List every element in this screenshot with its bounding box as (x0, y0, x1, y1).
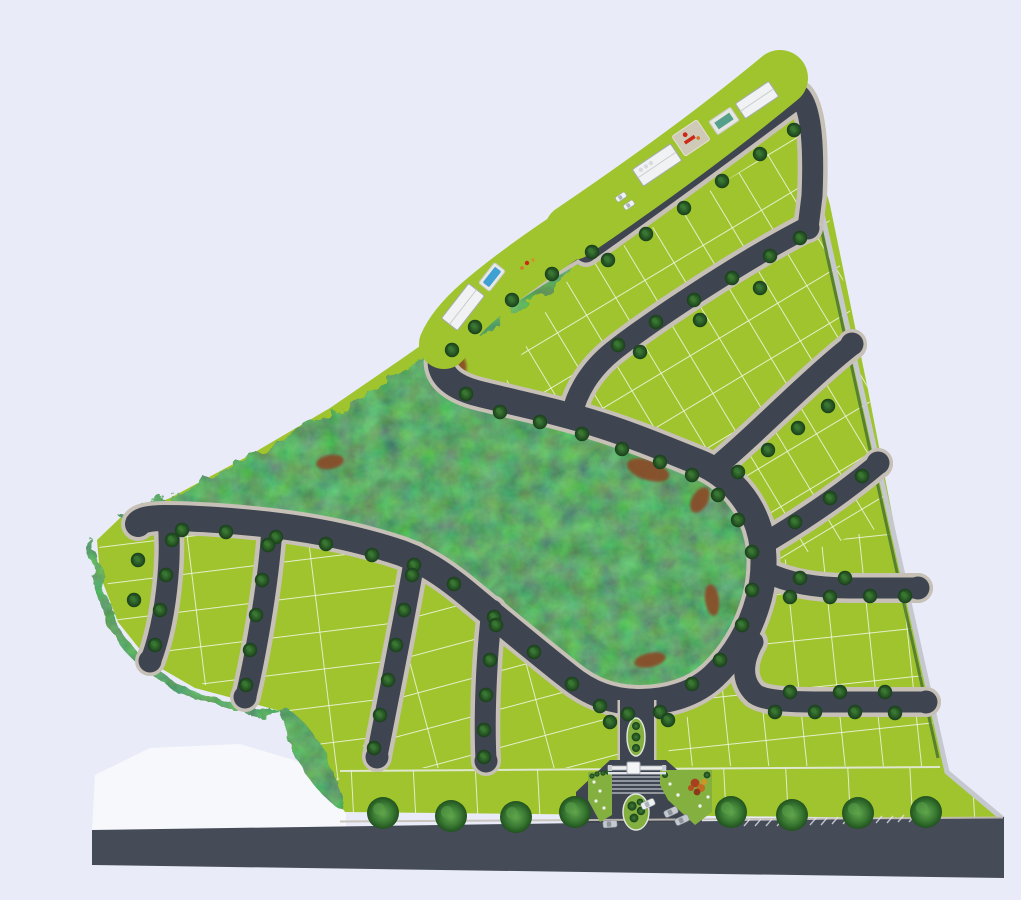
tree-icon (661, 713, 675, 727)
tree-icon (255, 573, 269, 587)
tree-icon (381, 673, 395, 687)
tree-icon (483, 653, 497, 667)
tree-icon (367, 797, 399, 829)
tree-icon (489, 618, 503, 632)
tree-icon (711, 488, 725, 502)
tree-icon (745, 545, 759, 559)
site-plan-render (0, 0, 1021, 900)
tree-icon (477, 723, 491, 737)
tree-icon (842, 797, 874, 829)
tree-icon (243, 643, 257, 657)
tree-icon (776, 799, 808, 831)
tree-icon (685, 677, 699, 691)
tree-icon (793, 231, 807, 245)
tree-icon (821, 399, 835, 413)
tree-icon (493, 405, 507, 419)
tree-icon (685, 468, 699, 482)
tree-icon (693, 313, 707, 327)
tree-icon (505, 293, 519, 307)
tree-icon (791, 421, 805, 435)
tree-icon (365, 548, 379, 562)
tree-icon (863, 589, 877, 603)
tree-icon (753, 281, 767, 295)
tree-icon (848, 705, 862, 719)
tree-icon (373, 708, 387, 722)
tree-icon (639, 227, 653, 241)
tree-icon (445, 343, 459, 357)
tree-icon (878, 685, 892, 699)
tree-icon (653, 455, 667, 469)
tree-icon (261, 538, 275, 552)
tree-icon (633, 345, 647, 359)
tree-icon (611, 338, 625, 352)
tree-icon (585, 245, 599, 259)
tree-icon (367, 741, 381, 755)
tree-icon (761, 443, 775, 457)
tree-icon (500, 801, 532, 833)
tree-icon (601, 253, 615, 267)
tree-icon (239, 678, 253, 692)
tree-icon (833, 685, 847, 699)
street-mid-2 (485, 610, 492, 760)
tree-icon (559, 796, 591, 828)
tree-icon (165, 533, 179, 547)
tree-icon (823, 491, 837, 505)
tree-icon (148, 638, 162, 652)
car-icon (603, 820, 617, 828)
tree-icon (715, 796, 747, 828)
tree-icon (687, 293, 701, 307)
tree-icon (459, 387, 473, 401)
tree-icon (575, 427, 589, 441)
guard-booth (627, 762, 640, 774)
tree-icon (527, 645, 541, 659)
tree-icon (479, 688, 493, 702)
tree-icon (745, 583, 759, 597)
tree-icon (793, 571, 807, 585)
tree-icon (621, 707, 635, 721)
tree-icon (127, 593, 141, 607)
tree-icon (725, 271, 739, 285)
tree-icon (823, 590, 837, 604)
tree-icon (389, 638, 403, 652)
tree-icon (788, 515, 802, 529)
tree-icon (808, 705, 822, 719)
tree-icon (545, 267, 559, 281)
tree-icon (435, 800, 467, 832)
tree-icon (533, 415, 547, 429)
tree-icon (855, 469, 869, 483)
tree-icon (910, 796, 942, 828)
tree-icon (888, 706, 902, 720)
tree-icon (249, 608, 263, 622)
tree-icon (735, 618, 749, 632)
tree-icon (649, 315, 663, 329)
tree-icon (477, 750, 491, 764)
tree-icon (838, 571, 852, 585)
tree-icon (898, 589, 912, 603)
tree-icon (731, 465, 745, 479)
median-island-lower (623, 794, 649, 830)
tree-icon (468, 320, 482, 334)
tree-icon (159, 568, 173, 582)
tree-icon (783, 590, 797, 604)
tree-icon (565, 677, 579, 691)
tree-icon (447, 577, 461, 591)
tree-icon (131, 553, 145, 567)
tree-icon (319, 537, 333, 551)
tree-icon (768, 705, 782, 719)
tree-icon (593, 699, 607, 713)
tree-icon (219, 525, 233, 539)
tree-icon (753, 147, 767, 161)
tree-icon (713, 653, 727, 667)
tree-icon (787, 123, 801, 137)
tree-icon (603, 715, 617, 729)
tree-icon (677, 201, 691, 215)
tree-icon (405, 568, 419, 582)
tree-icon (615, 442, 629, 456)
tree-icon (153, 603, 167, 617)
tree-icon (715, 174, 729, 188)
tree-icon (783, 685, 797, 699)
tree-icon (731, 513, 745, 527)
site-plan-canvas (0, 0, 1021, 900)
tree-icon (763, 249, 777, 263)
tree-icon (397, 603, 411, 617)
